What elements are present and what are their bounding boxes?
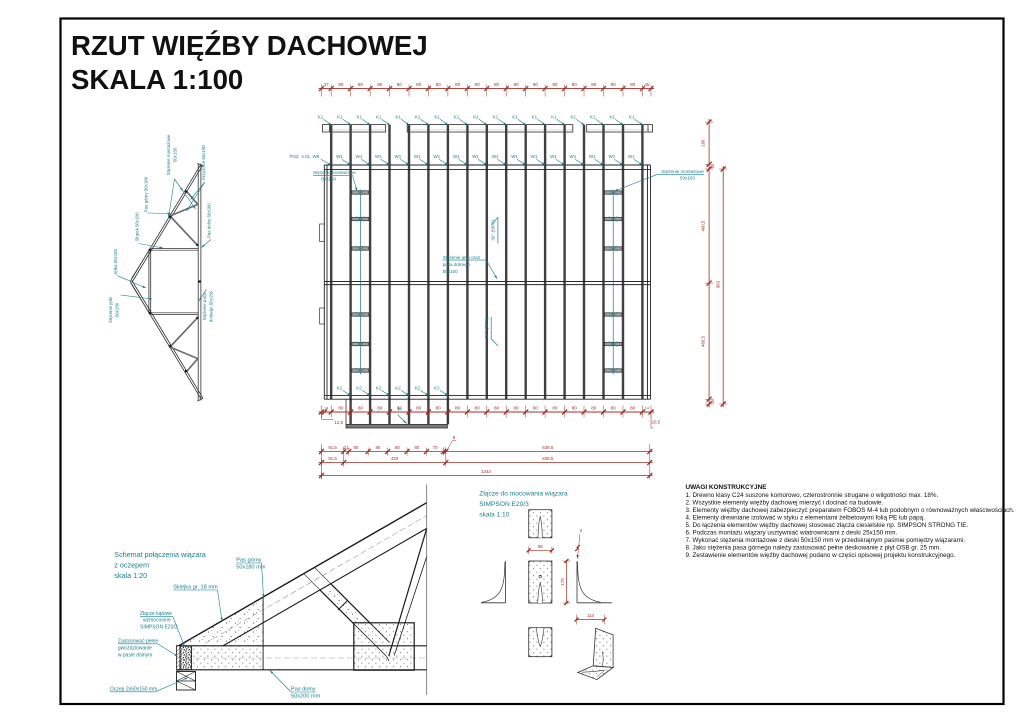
svg-text:W1: W1 — [356, 154, 363, 159]
svg-text:80: 80 — [591, 405, 597, 410]
svg-text:5. Do łączenia elementów więźb: 5. Do łączenia elementów więźby dachowej… — [686, 522, 969, 529]
svg-text:30° (58%): 30° (58%) — [484, 317, 489, 338]
svg-text:80: 80 — [552, 405, 558, 410]
svg-text:W1: W1 — [570, 154, 577, 159]
svg-text:4. Elementy drewniane izolować: 4. Elementy drewniane izolować w styku z… — [686, 515, 926, 522]
svg-text:80: 80 — [494, 82, 500, 87]
svg-text:80: 80 — [416, 405, 422, 410]
svg-text:SIMPSON E20/3: SIMPSON E20/3 — [140, 625, 178, 631]
svg-text:POZ. 4.01. W8: POZ. 4.01. W8 — [290, 154, 320, 159]
svg-text:W1: W1 — [511, 154, 518, 159]
svg-text:37: 37 — [324, 82, 329, 87]
svg-text:21: 21 — [344, 445, 349, 450]
svg-text:50x150: 50x150 — [172, 147, 177, 162]
svg-text:K1: K1 — [590, 114, 596, 119]
svg-text:K1: K1 — [629, 114, 635, 119]
svg-text:pasa dolnego: pasa dolnego — [443, 262, 471, 267]
svg-text:Stężenie pasa: Stężenie pasa — [202, 292, 207, 320]
svg-text:50x150: 50x150 — [680, 176, 696, 181]
svg-text:Stężenie jętki: Stężenie jętki — [108, 297, 113, 323]
svg-text:K1: K1 — [434, 114, 440, 119]
svg-text:K1: K1 — [318, 114, 324, 119]
svg-text:80: 80 — [377, 405, 383, 410]
svg-text:80: 80 — [414, 445, 419, 450]
svg-text:K1: K1 — [610, 114, 616, 119]
svg-text:80: 80 — [358, 405, 364, 410]
svg-text:963: 963 — [715, 280, 720, 288]
svg-text:12,5: 12,5 — [335, 420, 344, 425]
svg-text:9. Zestawienie elementów więźb: 9. Zestawienie elementów więźby dachowej… — [686, 552, 956, 559]
svg-text:K1: K1 — [571, 114, 577, 119]
svg-text:W1: W1 — [375, 154, 382, 159]
svg-text:80: 80 — [630, 82, 636, 87]
svg-text:80: 80 — [436, 82, 442, 87]
svg-text:K1: K1 — [396, 114, 402, 119]
svg-text:K1: K1 — [337, 114, 343, 119]
svg-text:W1: W1 — [395, 154, 402, 159]
svg-text:W1: W1 — [628, 154, 635, 159]
svg-text:80: 80 — [455, 82, 461, 87]
svg-text:80: 80 — [338, 405, 344, 410]
svg-text:W1: W1 — [433, 154, 440, 159]
svg-text:50x200 mm: 50x200 mm — [291, 694, 321, 700]
svg-text:3. Elementy więźby dachowej za: 3. Elementy więźby dachowej zabezpieczyć… — [686, 507, 1015, 514]
svg-text:1343: 1343 — [481, 469, 491, 474]
svg-text:80: 80 — [630, 405, 636, 410]
svg-text:839,5: 839,5 — [542, 456, 554, 461]
svg-text:80: 80 — [358, 82, 364, 87]
svg-text:z oczepem: z oczepem — [114, 561, 149, 570]
svg-text:50x150: 50x150 — [443, 269, 459, 274]
svg-text:80: 80 — [338, 82, 344, 87]
svg-text:Słupek 50x100: Słupek 50x100 — [135, 212, 140, 242]
svg-text:Pas dolny: Pas dolny — [291, 687, 316, 693]
svg-text:K2: K2 — [415, 386, 421, 391]
svg-text:1. Drewno klasy C24 suszone ko: 1. Drewno klasy C24 suszone komorowo, cz… — [686, 492, 939, 499]
svg-text:W1: W1 — [531, 154, 538, 159]
svg-text:W1: W1 — [589, 154, 596, 159]
svg-text:Pas dolny 50x200: Pas dolny 50x200 — [207, 203, 212, 238]
svg-text:80: 80 — [513, 405, 519, 410]
svg-text:Stężenie montażowe: Stężenie montażowe — [166, 134, 171, 175]
svg-text:460,5: 460,5 — [701, 335, 706, 347]
svg-text:wzmocnione: wzmocnione — [143, 618, 171, 624]
svg-text:80: 80 — [591, 82, 597, 87]
svg-text:35: 35 — [644, 82, 649, 87]
svg-text:K1: K1 — [532, 114, 538, 119]
svg-text:Sklejka gr. 18 mm: Sklejka gr. 18 mm — [173, 585, 218, 591]
svg-text:80: 80 — [552, 82, 558, 87]
svg-text:166: 166 — [701, 139, 706, 147]
svg-text:80: 80 — [533, 405, 539, 410]
svg-text:Stężenie montażowe: Stężenie montażowe — [661, 169, 704, 174]
svg-text:dolnego 50x150: dolnego 50x150 — [209, 290, 214, 322]
svg-text:K1: K1 — [415, 114, 421, 119]
svg-text:80: 80 — [375, 445, 380, 450]
svg-text:Pas górny: Pas górny — [236, 558, 261, 564]
svg-text:W1: W1 — [472, 154, 479, 159]
svg-text:460,5: 460,5 — [701, 220, 706, 232]
svg-text:K1: K1 — [512, 114, 518, 119]
svg-text:K2: K2 — [337, 386, 343, 391]
svg-text:80: 80 — [436, 405, 442, 410]
svg-text:95: 95 — [538, 544, 543, 549]
svg-text:80: 80 — [513, 82, 519, 87]
svg-text:80: 80 — [533, 82, 539, 87]
svg-text:80: 80 — [494, 405, 500, 410]
svg-text:14: 14 — [645, 406, 649, 410]
svg-text:20,5: 20,5 — [652, 420, 661, 425]
svg-text:K1: K1 — [454, 114, 460, 119]
svg-text:K2: K2 — [395, 386, 401, 391]
svg-text:Stężenie montażowe: Stężenie montażowe — [313, 170, 356, 175]
svg-text:80: 80 — [455, 405, 461, 410]
svg-text:K2: K2 — [376, 386, 382, 391]
svg-text:K2: K2 — [356, 386, 362, 391]
svg-text:80: 80 — [475, 405, 481, 410]
svg-text:839,5: 839,5 — [542, 445, 554, 450]
svg-text:2. Wszystkie elementy więźby d: 2. Wszystkie elementy więźby dachowej mi… — [686, 500, 884, 507]
svg-text:80: 80 — [397, 405, 403, 410]
svg-text:w pasie dolnym: w pasie dolnym — [118, 653, 152, 659]
svg-text:113: 113 — [587, 613, 595, 618]
svg-text:91,5: 91,5 — [328, 445, 337, 450]
svg-text:W1: W1 — [609, 154, 616, 159]
svg-text:Pas górny 50x180: Pas górny 50x180 — [144, 176, 149, 212]
svg-text:80: 80 — [475, 82, 481, 87]
svg-text:30° (58%): 30° (58%) — [491, 220, 496, 241]
svg-text:8. Jako stężenia pasa górnego: 8. Jako stężenia pasa górnego należy zas… — [686, 545, 942, 552]
svg-text:K1: K1 — [473, 114, 479, 119]
svg-text:skala 1:20: skala 1:20 — [114, 571, 147, 580]
svg-text:K1: K1 — [357, 114, 363, 119]
svg-text:80: 80 — [397, 82, 403, 87]
svg-text:K1: K1 — [493, 114, 499, 119]
svg-text:W1: W1 — [492, 154, 499, 159]
svg-text:Jętka 50x150: Jętka 50x150 — [113, 248, 118, 275]
svg-text:80: 80 — [416, 82, 422, 87]
svg-text:W1: W1 — [453, 154, 460, 159]
svg-text:80: 80 — [572, 82, 578, 87]
svg-text:skala 1:10: skala 1:10 — [479, 512, 509, 519]
svg-text:170: 170 — [560, 578, 565, 586]
svg-text:RZUT WIĘŹBY DACHOWEJ: RZUT WIĘŹBY DACHOWEJ — [71, 30, 428, 61]
svg-text:70: 70 — [433, 445, 438, 450]
svg-text:80: 80 — [572, 405, 578, 410]
svg-text:16: 16 — [711, 165, 715, 169]
svg-text:W1: W1 — [550, 154, 557, 159]
svg-text:91,5: 91,5 — [328, 456, 337, 461]
svg-text:W1: W1 — [336, 154, 343, 159]
svg-text:K2: K2 — [434, 386, 440, 391]
svg-text:W1: W1 — [414, 154, 421, 159]
svg-text:6. Podczas montażu wiązary usz: 6. Podczas montażu wiązary usztywniać wi… — [686, 530, 898, 537]
svg-text:UWAGI KONSTRUKCYJNE: UWAGI KONSTRUKCYJNE — [686, 484, 768, 491]
svg-text:80: 80 — [611, 82, 617, 87]
svg-text:80: 80 — [354, 445, 359, 450]
svg-text:K1: K1 — [551, 114, 557, 119]
svg-text:Złącze do mocowania wiązara: Złącze do mocowania wiązara — [479, 491, 568, 498]
svg-text:16: 16 — [711, 400, 715, 404]
svg-text:SKALA 1:100: SKALA 1:100 — [71, 64, 243, 95]
svg-text:gwoździowanie: gwoździowanie — [118, 646, 152, 652]
svg-text:K1: K1 — [376, 114, 382, 119]
svg-text:Schemat połączenia wiązara: Schemat połączenia wiązara — [114, 550, 206, 559]
svg-text:50x150: 50x150 — [114, 302, 119, 317]
svg-text:80: 80 — [611, 405, 617, 410]
svg-text:7. Wykonać stężenia montażowe: 7. Wykonać stężenia montażowe z deski 50… — [686, 537, 966, 544]
svg-text:Stężenie jętki oraz: Stężenie jętki oraz — [443, 255, 481, 260]
svg-text:Krzyżulce 50x100: Krzyżulce 50x100 — [201, 145, 206, 180]
svg-text:SIMPSON E20/3: SIMPSON E20/3 — [479, 501, 529, 508]
svg-text:420: 420 — [391, 456, 399, 461]
svg-text:80: 80 — [377, 82, 383, 87]
svg-text:80: 80 — [395, 445, 400, 450]
svg-text:50x150: 50x150 — [321, 177, 337, 182]
